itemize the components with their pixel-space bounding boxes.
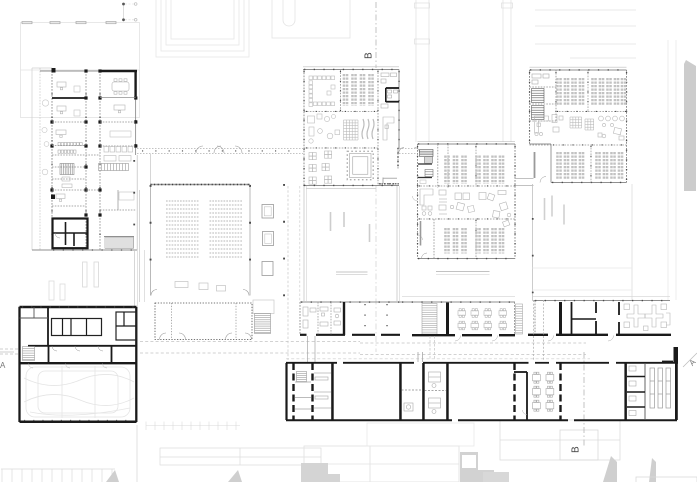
svg-text:B: B bbox=[364, 52, 375, 59]
svg-text:B: B bbox=[571, 446, 582, 453]
svg-text:A: A bbox=[0, 361, 6, 370]
